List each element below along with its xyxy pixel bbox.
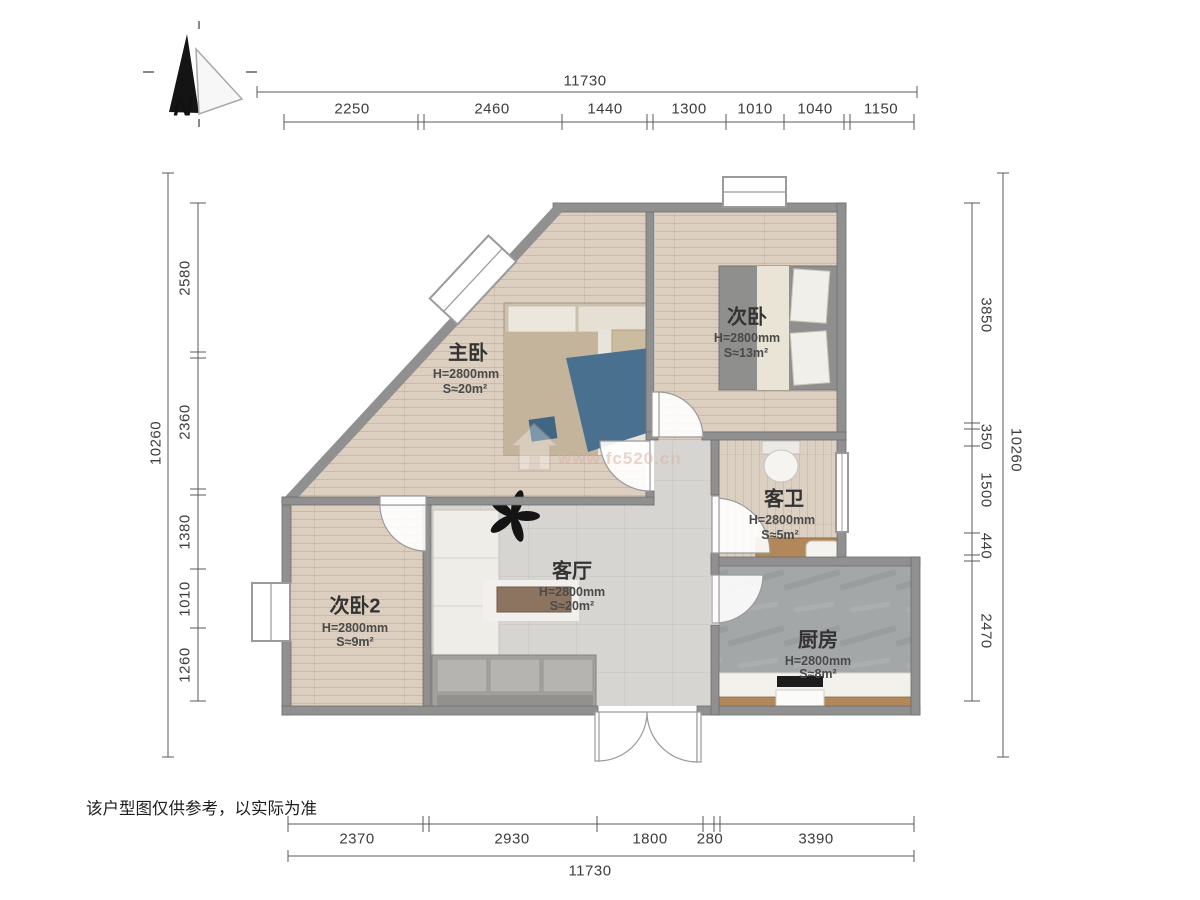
dim-top-seg: 2250 — [334, 101, 369, 118]
room-height: H=2800mm — [749, 513, 815, 527]
room-label-kitchen: 厨房 — [798, 624, 838, 653]
dim-bottom-seg: 280 — [697, 831, 724, 848]
room-label-second-bedroom: 次卧 — [727, 301, 767, 330]
entry-door-right — [647, 712, 697, 762]
disclaimer-text: 该户型图仅供参考，以实际为准 — [86, 795, 317, 819]
room-height: H=2800mm — [322, 621, 388, 635]
room-area: S≈13m² — [724, 346, 768, 360]
dim-right-seg: 440 — [978, 533, 995, 560]
dim-bottom-seg: 2370 — [339, 831, 374, 848]
room-area: S≈8m² — [799, 667, 836, 681]
dim-top-seg: 1150 — [864, 101, 898, 118]
room-height: H=2800mm — [714, 331, 780, 345]
room-height: H=2800mm — [433, 367, 499, 381]
dim-bottom-seg: 1800 — [632, 831, 667, 848]
room-label-bathroom: 客卫 — [764, 483, 804, 512]
window-bathroom — [836, 453, 848, 532]
room-area: S≈9m² — [336, 635, 373, 649]
dim-right-seg: 3850 — [978, 297, 995, 332]
dim-top-seg: 2460 — [474, 101, 509, 118]
dim-top-total: 11730 — [563, 73, 606, 90]
dim-left-seg: 1260 — [177, 647, 194, 682]
entry-door-left — [598, 712, 647, 761]
north-arrow-icon — [143, 21, 257, 127]
room-height: H=2800mm — [539, 585, 605, 599]
dim-bottom-total: 11730 — [568, 863, 611, 880]
dim-top-seg: 1440 — [587, 101, 622, 118]
room-area: S≈5m² — [761, 528, 798, 542]
room-height: H=2800mm — [785, 654, 851, 668]
dim-top-seg: 1010 — [737, 101, 772, 118]
dim-top-seg: 1300 — [671, 101, 706, 118]
dim-left-seg: 2580 — [177, 260, 194, 295]
dim-left-seg: 1010 — [177, 581, 194, 616]
north-label: N — [173, 92, 193, 123]
room-label-master-bedroom: 主卧 — [448, 337, 488, 366]
sofa — [432, 655, 596, 714]
window-left — [252, 583, 290, 641]
dim-right-total: 10260 — [1008, 428, 1025, 472]
room-label-living-room: 客厅 — [552, 555, 592, 584]
dim-top-seg: 1040 — [797, 101, 832, 118]
watermark-url: www.fc520.cn — [558, 449, 682, 469]
wall-top — [553, 203, 846, 212]
room-area: S≈20m² — [443, 382, 487, 396]
room-label-second-bedroom2: 次卧2 — [329, 590, 380, 619]
dim-right-seg: 350 — [978, 424, 995, 451]
dim-bottom-seg: 3390 — [798, 831, 833, 848]
dim-left-total: 10260 — [148, 421, 165, 465]
dim-left-seg: 1380 — [177, 514, 194, 549]
window-top — [723, 177, 786, 207]
dim-bottom-seg: 2930 — [494, 831, 529, 848]
dim-right-seg: 2470 — [978, 613, 995, 648]
floorplan-canvas: N 11730 2250 2460 1440 1300 1010 1040 11… — [0, 0, 1200, 900]
room-area: S≈20m² — [550, 599, 594, 613]
toilet — [762, 441, 800, 482]
dim-right-seg: 1500 — [978, 472, 995, 507]
dim-left-seg: 2360 — [177, 404, 194, 439]
